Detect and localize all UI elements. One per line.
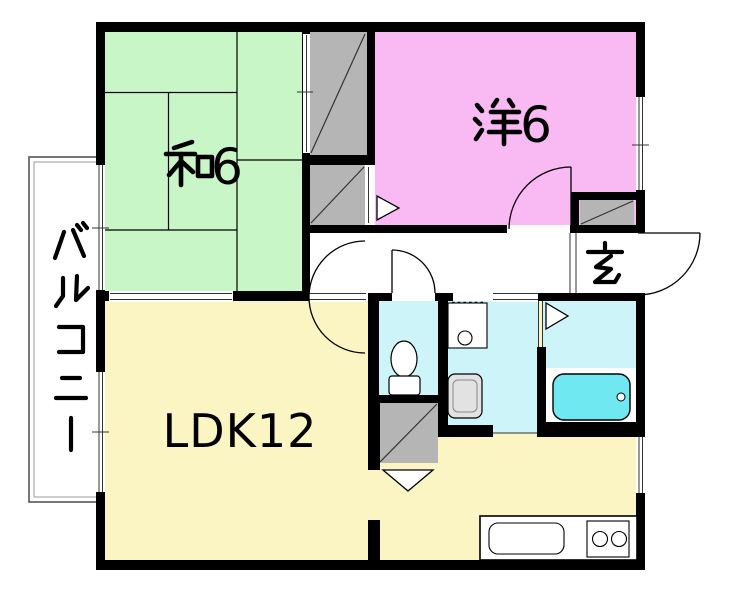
label-genkan: 玄	[584, 239, 626, 288]
wall-bottom	[96, 560, 645, 570]
kitchen-sink-icon	[489, 523, 564, 554]
bathtub-icon	[553, 374, 630, 420]
entrance-door-gap	[636, 233, 645, 293]
floor-plan-page: 6 和6 6 洋6 LDK12	[0, 0, 739, 600]
washing-machine-icon	[448, 374, 482, 418]
window-kitchen	[636, 437, 645, 493]
washitsu-ldk-fusuma	[109, 291, 233, 302]
kitchen-counter	[480, 516, 637, 560]
label-balcony: バルコニー	[47, 223, 93, 450]
floor-plan-canvas: 6 和6 6 洋6 LDK12	[0, 0, 739, 600]
washbasin-icon	[448, 303, 487, 348]
label-youshitsu: 6 洋6	[469, 92, 552, 154]
toilet-icon	[389, 341, 420, 395]
closet-lower-door-strip	[365, 166, 374, 224]
stove-icon	[587, 521, 629, 557]
label-washitsu: 6 和6	[161, 134, 243, 196]
ldk-label: LDK12	[163, 404, 318, 458]
